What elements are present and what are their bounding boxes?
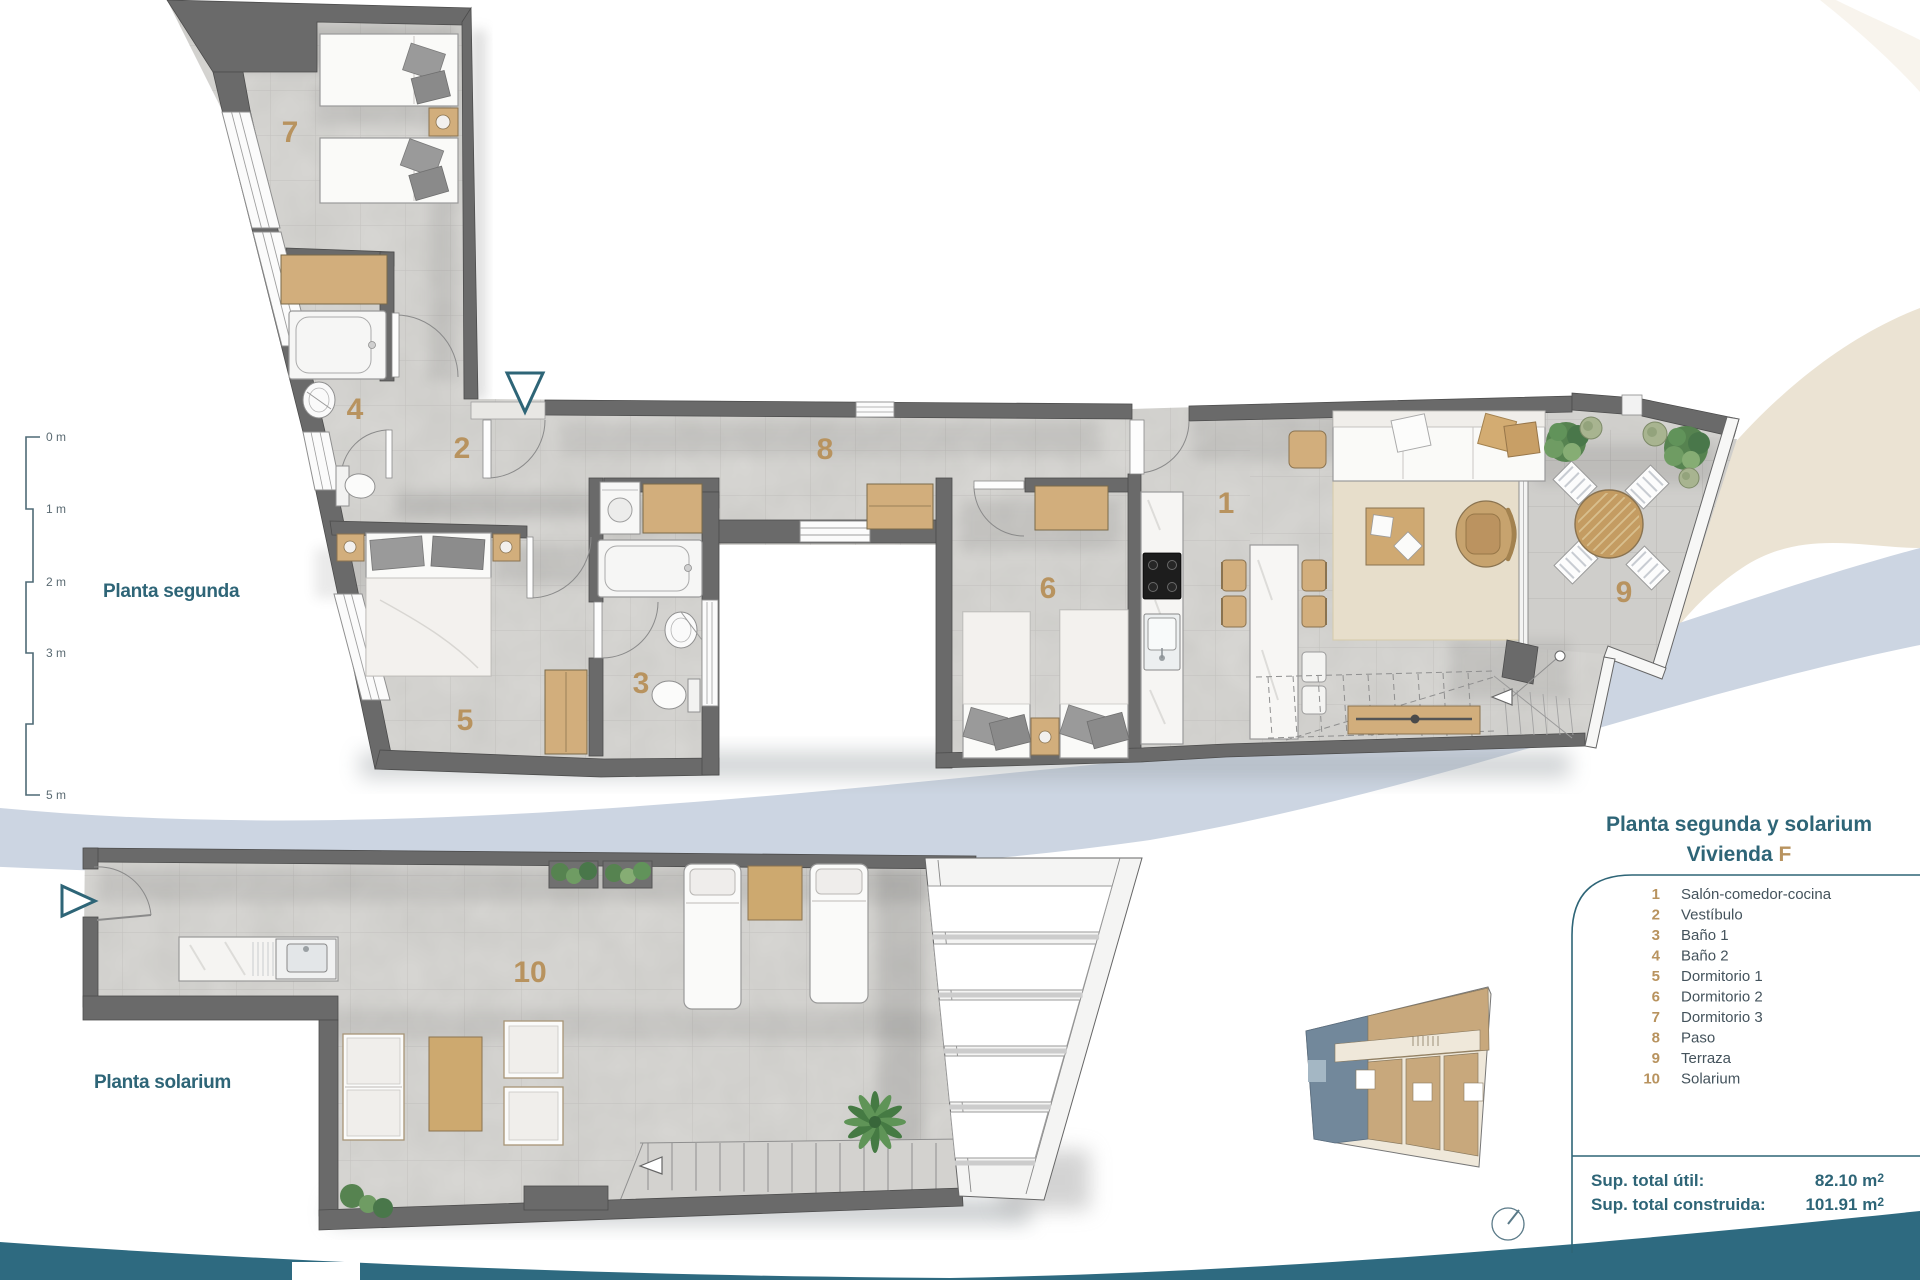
svg-text:0 m: 0 m	[46, 430, 66, 444]
svg-text:9: 9	[1652, 1050, 1660, 1067]
svg-text:5: 5	[457, 704, 474, 737]
svg-text:9: 9	[1616, 576, 1633, 609]
svg-text:4: 4	[347, 393, 364, 426]
svg-text:3: 3	[1652, 927, 1660, 944]
svg-text:7: 7	[1652, 1009, 1660, 1026]
svg-text:2: 2	[454, 432, 471, 465]
svg-text:Baño 2: Baño 2	[1681, 948, 1729, 965]
svg-text:4: 4	[1652, 948, 1661, 965]
svg-text:6: 6	[1652, 989, 1660, 1006]
svg-text:6: 6	[1040, 572, 1057, 605]
svg-text:Planta segunda: Planta segunda	[103, 581, 240, 602]
svg-text:1 m: 1 m	[46, 502, 66, 516]
svg-text:Sup. total útil:: Sup. total útil:	[1591, 1171, 1704, 1190]
svg-text:Vestíbulo: Vestíbulo	[1681, 907, 1743, 924]
svg-text:10: 10	[513, 956, 546, 989]
svg-text:2 m: 2 m	[46, 575, 66, 589]
svg-text:Dormitorio 1: Dormitorio 1	[1681, 968, 1763, 985]
svg-text:2: 2	[1652, 907, 1660, 924]
svg-text:82.10 m2: 82.10 m2	[1815, 1171, 1884, 1190]
svg-text:8: 8	[1652, 1030, 1660, 1047]
svg-text:Planta solarium: Planta solarium	[94, 1072, 231, 1093]
svg-text:Sup. total construida:: Sup. total construida:	[1591, 1195, 1766, 1214]
svg-text:7: 7	[282, 116, 299, 149]
svg-text:Dormitorio 2: Dormitorio 2	[1681, 989, 1763, 1006]
svg-text:3: 3	[633, 667, 650, 700]
svg-text:3 m: 3 m	[46, 646, 66, 660]
svg-text:10: 10	[1643, 1071, 1660, 1088]
svg-text:1: 1	[1652, 886, 1660, 903]
svg-text:8: 8	[817, 433, 834, 466]
svg-text:1: 1	[1218, 487, 1235, 520]
svg-text:Vivienda F: Vivienda F	[1687, 843, 1792, 866]
svg-text:5 m: 5 m	[46, 788, 66, 802]
svg-text:Baño 1: Baño 1	[1681, 927, 1729, 944]
svg-text:Planta segunda y solarium: Planta segunda y solarium	[1606, 813, 1872, 836]
svg-text:Salón-comedor-cocina: Salón-comedor-cocina	[1681, 886, 1832, 903]
svg-text:Paso: Paso	[1681, 1030, 1715, 1047]
svg-text:Solarium: Solarium	[1681, 1071, 1740, 1088]
svg-text:Terraza: Terraza	[1681, 1050, 1732, 1067]
svg-text:101.91 m2: 101.91 m2	[1805, 1195, 1884, 1214]
svg-text:Dormitorio 3: Dormitorio 3	[1681, 1009, 1763, 1026]
svg-text:5: 5	[1652, 968, 1660, 985]
